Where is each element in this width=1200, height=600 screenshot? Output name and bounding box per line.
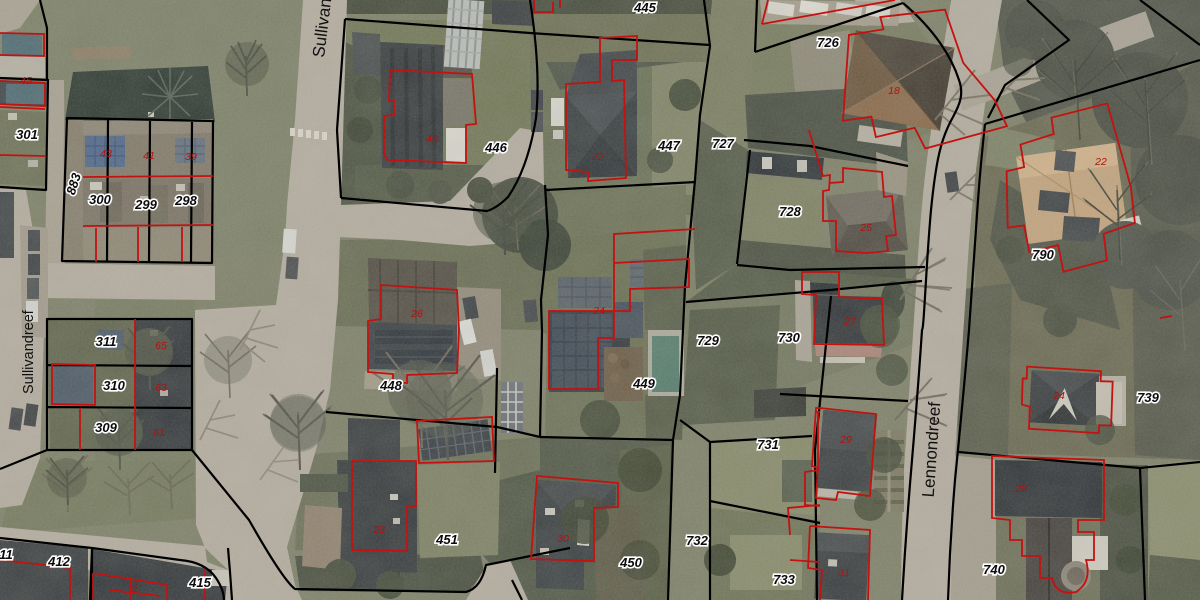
svg-text:45: 45 [20,75,32,87]
svg-text:449: 449 [632,376,655,391]
svg-text:450: 450 [619,555,642,570]
svg-text:310: 310 [103,378,125,393]
svg-text:Sullivandreef: Sullivandreef [21,309,37,394]
svg-text:729: 729 [697,333,719,348]
svg-text:790: 790 [1032,247,1054,262]
svg-text:39: 39 [185,151,197,163]
svg-text:451: 451 [435,532,458,547]
svg-text:311: 311 [96,334,117,349]
svg-text:299: 299 [134,197,157,212]
svg-text:28: 28 [1014,483,1027,495]
svg-text:733: 733 [773,572,795,587]
svg-text:31: 31 [838,567,850,579]
svg-text:739: 739 [1137,390,1159,405]
svg-text:27: 27 [843,316,857,328]
svg-text:730: 730 [778,330,800,345]
svg-text:732: 732 [686,533,708,548]
svg-text:65: 65 [155,340,167,352]
svg-text:22: 22 [591,151,604,163]
svg-text:24: 24 [592,305,605,317]
svg-text:26: 26 [410,308,423,320]
svg-text:30: 30 [557,533,569,545]
svg-text:448: 448 [379,378,402,393]
svg-text:726: 726 [817,35,839,50]
svg-text:447: 447 [657,138,680,153]
svg-text:301: 301 [16,127,38,142]
svg-text:18: 18 [888,85,900,97]
svg-text:728: 728 [779,204,801,219]
svg-text:22: 22 [1094,156,1107,168]
svg-text:41: 41 [143,150,155,162]
svg-text:727: 727 [712,136,734,151]
svg-text:446: 446 [484,140,507,155]
svg-text:24: 24 [1052,390,1065,402]
svg-text:298: 298 [174,193,197,208]
svg-text:61: 61 [153,427,165,439]
svg-text:29: 29 [839,434,852,446]
svg-text:11: 11 [0,547,13,562]
svg-text:300: 300 [89,192,111,207]
svg-text:309: 309 [95,420,117,435]
svg-text:415: 415 [188,575,211,590]
svg-text:412: 412 [47,554,70,569]
svg-text:43: 43 [100,148,112,160]
svg-text:445: 445 [633,0,656,15]
svg-text:25: 25 [859,222,872,234]
svg-text:63: 63 [155,382,167,394]
svg-text:40: 40 [426,133,438,145]
svg-text:731: 731 [757,437,779,452]
svg-text:2: 2 [130,583,137,595]
svg-text:28: 28 [372,524,385,536]
svg-text:740: 740 [983,562,1005,577]
